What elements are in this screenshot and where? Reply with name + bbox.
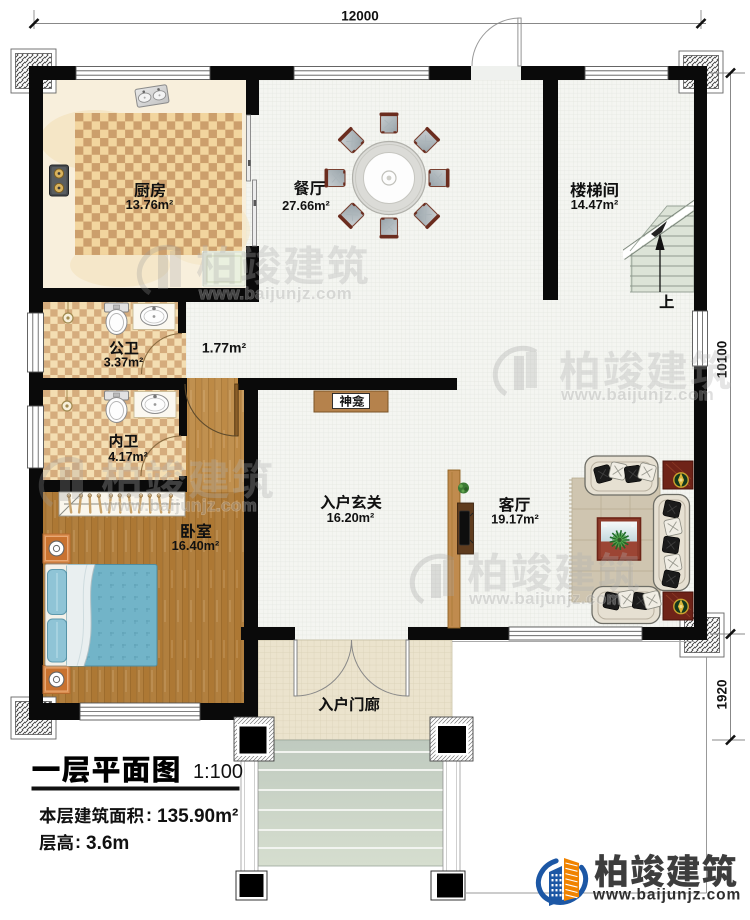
svg-text:1.77m²: 1.77m² xyxy=(202,340,247,356)
svg-text:135.90m²: 135.90m² xyxy=(157,806,238,827)
svg-text:14.47m²: 14.47m² xyxy=(571,197,619,212)
svg-text:www.baijunjz.com: www.baijunjz.com xyxy=(592,887,741,904)
svg-text:3.37m²: 3.37m² xyxy=(104,356,144,370)
svg-text:www.baijunjz.com: www.baijunjz.com xyxy=(560,385,714,404)
svg-text::: : xyxy=(75,832,81,852)
svg-text:1920: 1920 xyxy=(715,679,730,709)
svg-text:27.66m²: 27.66m² xyxy=(282,198,330,213)
svg-text:13.76m²: 13.76m² xyxy=(126,197,174,212)
svg-text:12000: 12000 xyxy=(341,9,379,24)
svg-text:1:100: 1:100 xyxy=(193,761,243,783)
svg-text:www.baijunjz.com: www.baijunjz.com xyxy=(198,284,352,303)
svg-text:16.40m²: 16.40m² xyxy=(172,538,220,553)
svg-text:19.17m²: 19.17m² xyxy=(491,512,539,527)
svg-text:www.baijunjz.com: www.baijunjz.com xyxy=(103,496,257,515)
svg-text:16.20m²: 16.20m² xyxy=(327,510,375,525)
svg-text:www.baijunjz.com: www.baijunjz.com xyxy=(468,589,622,608)
svg-text::: : xyxy=(146,805,152,825)
svg-text:3.6m: 3.6m xyxy=(86,833,129,854)
